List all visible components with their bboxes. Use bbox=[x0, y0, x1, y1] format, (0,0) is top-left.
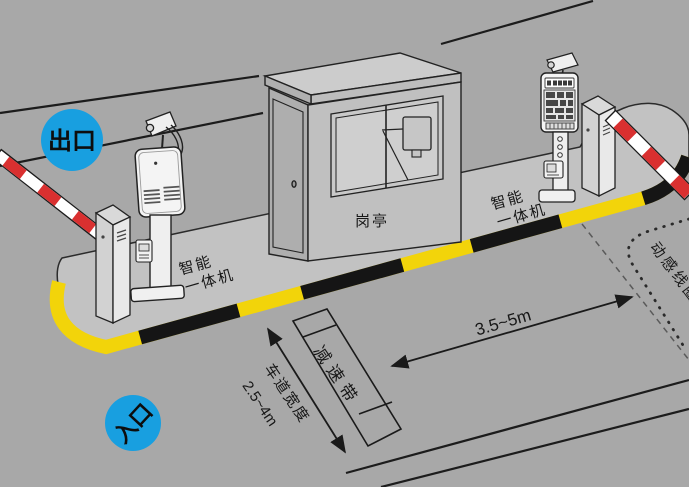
machine-pole bbox=[150, 215, 171, 290]
booth-door-handle-icon bbox=[292, 181, 296, 187]
speaker-grille-icon bbox=[546, 123, 574, 129]
entrance-badge: 入口 bbox=[105, 395, 161, 451]
post-dot-icon bbox=[101, 235, 104, 238]
exit-badge: 出口 bbox=[41, 109, 103, 171]
machine-head bbox=[135, 146, 186, 217]
entrance-barrier-post bbox=[582, 96, 615, 196]
info-screen bbox=[544, 90, 575, 121]
booth-left-face bbox=[269, 88, 308, 261]
parking-system-diagram: 岗亭 bbox=[0, 0, 689, 487]
license-plate-display bbox=[545, 78, 574, 88]
booth-label: 岗亭 bbox=[355, 212, 389, 230]
machine-base bbox=[131, 285, 185, 302]
exit-badge-label: 出口 bbox=[48, 128, 96, 155]
card-reader-icon bbox=[544, 161, 563, 178]
pole-buttons-icon bbox=[558, 137, 563, 158]
intercom-icon bbox=[136, 240, 152, 262]
post-dot-icon bbox=[586, 128, 589, 131]
exit-barrier-post bbox=[96, 205, 130, 323]
machine-base bbox=[539, 190, 575, 202]
diagram-canvas: 岗亭 bbox=[0, 0, 689, 487]
